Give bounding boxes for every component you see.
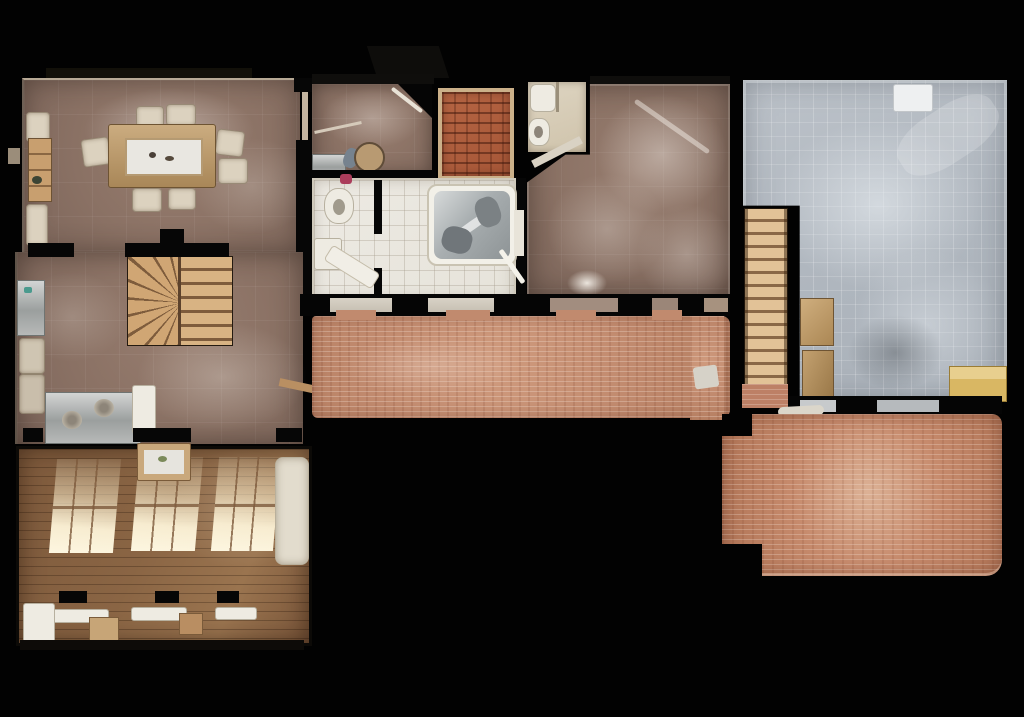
sink-basin [62,411,82,429]
cabinet [23,603,55,643]
stair-landing [742,384,788,408]
bath-sink [530,84,556,112]
island-table [137,443,191,481]
wall-segment [133,428,191,442]
toilet [324,188,354,224]
wall-stub [160,229,184,245]
round-table [354,142,385,173]
window-light [49,459,121,553]
brick-patio[interactable] [722,414,1002,576]
sill-shadow [217,591,239,603]
wall-segment [28,243,74,257]
brick-highlight [342,336,522,396]
island-decor [158,456,167,462]
sill-shadow [59,591,87,603]
straight-staircase[interactable] [744,208,788,386]
wall-segment [125,243,229,257]
light-haze [547,174,667,284]
wc-partition [374,180,382,234]
terracotta-room[interactable] [438,88,514,180]
table-runner [125,138,203,176]
study-room[interactable] [312,84,432,176]
door-opening [877,400,939,412]
dining-chair [218,158,248,184]
plant [32,176,42,184]
window-light [211,457,281,551]
table-decor [149,152,156,158]
stool [89,617,119,641]
divider [556,82,559,112]
light-haze [637,204,737,304]
radiator [215,607,257,620]
island-top [144,450,184,474]
toilet-bowl [333,199,345,215]
sill-shadow [155,591,179,603]
floorplan-canvas[interactable] [0,0,1024,717]
dining-chair [215,128,246,157]
straight-treads-right [180,257,232,345]
toilet-bowl [534,126,543,138]
dining-chair [168,188,196,210]
brick-sill-tab [556,310,596,320]
cabinet [19,338,45,374]
kitchen-stair-hall[interactable] [15,252,303,444]
light-haze [597,94,727,214]
winder-treads-left [128,257,180,345]
yellow-top [950,367,1006,379]
cabinet [19,374,45,414]
sink-basin [94,399,114,417]
tall-cabinet [132,385,156,434]
stool [179,613,203,635]
winder-staircase[interactable] [127,256,233,346]
dining-room[interactable] [22,78,300,252]
dining-table [108,124,216,188]
patio-notch [722,414,752,436]
sideboard [26,204,48,246]
threshold-stone [693,364,720,389]
corner-wall-cut [398,84,432,118]
teal-accent [24,287,32,293]
kitchen-counter [45,392,141,444]
living-bottom-wall [20,640,304,650]
toilet [528,118,550,146]
wall-stub [294,78,312,92]
sofa [275,457,309,565]
wall-spa-left [302,178,312,294]
box [802,350,834,398]
wall-segment [23,428,43,442]
patio-notch [722,544,762,578]
brick-sill-tab [652,310,682,320]
brick-sill-tab [336,310,376,320]
spa-bathroom[interactable] [312,178,516,302]
shelf-unit [28,138,52,202]
brick-sill-tab [446,310,490,320]
pink-accent [340,174,352,184]
living-room[interactable] [16,446,312,646]
study-top-wall [312,74,434,84]
brick-walkway[interactable] [312,316,730,418]
dining-chair [166,104,196,126]
dining-chair [132,188,162,212]
stair-rail [178,257,181,345]
door-opening [704,298,728,312]
cardboard-boxes [800,298,832,398]
exterior-wall-stub [8,148,20,164]
light-streak [634,99,711,155]
table-decor [165,156,174,161]
hall-top-wall [590,76,730,84]
door-glow [567,270,607,296]
box [800,298,834,346]
door-leaf [514,210,524,256]
wall-segment [276,428,302,442]
dark-smudge [848,315,943,390]
fridge [17,280,45,336]
partition-line [314,121,362,134]
white-unit [893,84,933,112]
hot-tub-cover [434,191,510,259]
